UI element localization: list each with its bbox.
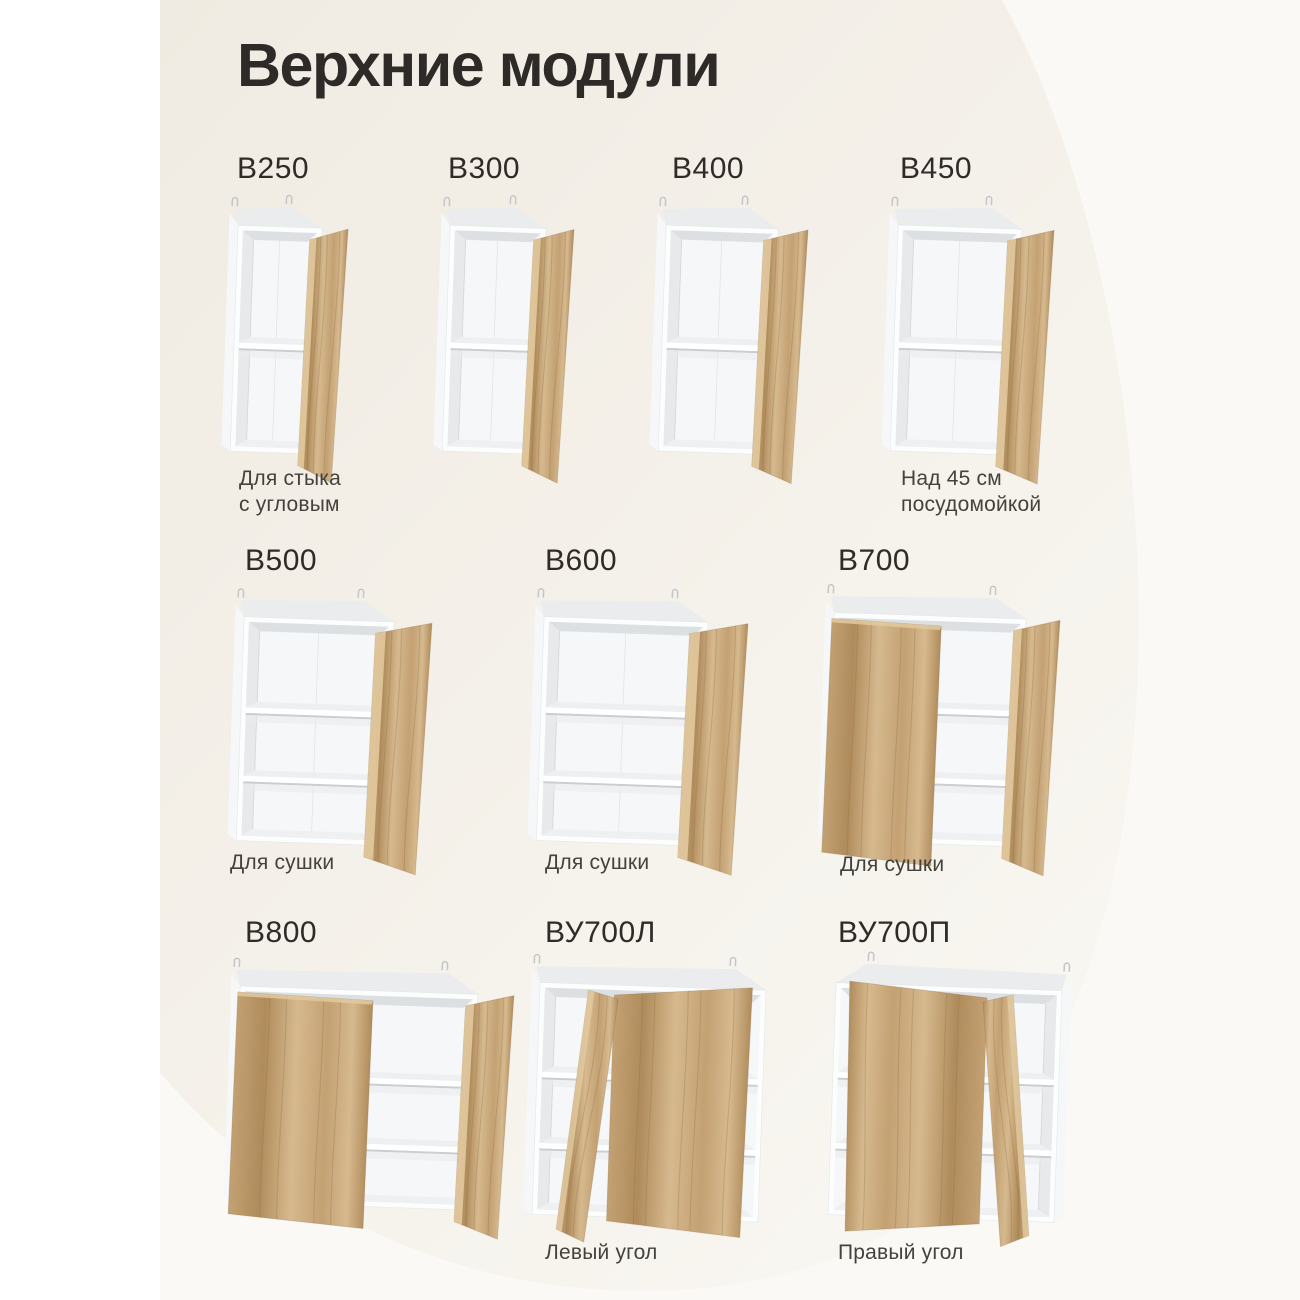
page-title: Верхние модули	[237, 30, 719, 100]
module-caption-b600: Для сушки	[545, 850, 649, 876]
module-code-vu700p: ВУ700П	[838, 916, 951, 950]
module-caption-b450: Над 45 см посудомойкой	[901, 466, 1041, 517]
catalog-page: Верхние модули В250 В300 В400 В450	[0, 0, 1300, 1300]
module-caption-vu700p: Правый угол	[838, 1240, 964, 1266]
cabinet-image-b800	[230, 954, 528, 1254]
module-code-vu700l: ВУ700Л	[545, 916, 656, 950]
module-code-b700: В700	[838, 544, 910, 578]
cabinet-image-vu700l	[530, 950, 784, 1266]
cabinet-image-b400	[656, 192, 822, 502]
module-code-b800: В800	[245, 916, 317, 950]
module-code-b450: В450	[900, 152, 972, 186]
cabinet-image-b700	[824, 580, 1074, 892]
module-caption-b500: Для сушки	[230, 850, 334, 876]
module-code-b300: В300	[448, 152, 520, 186]
module-code-b500: В500	[245, 544, 317, 578]
cabinet-image-vu700p	[818, 950, 1072, 1266]
cabinet-image-b250	[228, 192, 362, 502]
cabinet-image-b600	[534, 584, 762, 892]
cabinet-image-b500	[234, 584, 446, 892]
module-caption-vu700l: Левый угол	[545, 1240, 657, 1266]
module-code-b250: В250	[237, 152, 309, 186]
module-caption-b250: Для стыка с угловым	[239, 466, 341, 517]
cabinet-image-b300	[440, 192, 588, 502]
cabinet-image-b450	[888, 192, 1068, 502]
module-caption-b700: Для сушки	[840, 852, 944, 878]
module-code-b400: В400	[672, 152, 744, 186]
module-code-b600: В600	[545, 544, 617, 578]
